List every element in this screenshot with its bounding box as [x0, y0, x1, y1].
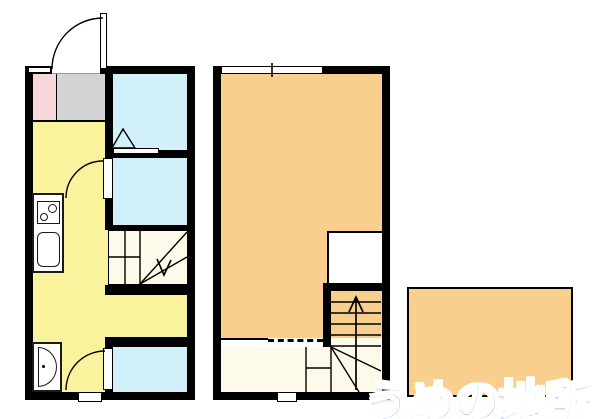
washbasin-unit [32, 342, 62, 392]
washbasin-bowl [38, 347, 57, 387]
faucet-icon [42, 365, 45, 368]
bath-door [113, 148, 159, 154]
western-room-floor [221, 74, 382, 338]
burner-icon [40, 213, 48, 221]
floor-vent [78, 392, 102, 402]
floor-vent [277, 392, 297, 402]
interior-wall [105, 337, 187, 347]
stair-wall [323, 283, 382, 291]
wc-door [103, 348, 113, 390]
window [221, 66, 323, 74]
entrance-door [100, 13, 107, 69]
stairwell-void [327, 231, 382, 285]
loft-dashed-line [268, 339, 323, 342]
toilet-room-floor [113, 347, 187, 392]
interior-wall [105, 285, 195, 295]
dressing-room-floor [113, 158, 187, 225]
entrance-door-swing-arc [52, 18, 103, 69]
dressing-room-door [103, 158, 113, 199]
entrance-floor [57, 74, 105, 122]
floor-edge-line [221, 338, 268, 340]
left-staircase [108, 230, 188, 285]
bathroom-floor [113, 74, 187, 150]
kitchen-counter [32, 193, 64, 273]
stair-wall [323, 283, 331, 347]
kitchen-sink [37, 232, 60, 267]
floor-plan: 玄関 浴室 脱衣 室 DK 5帖 WC 洋室 7.2帖 ロフト 3帖 うめの地所 [0, 0, 600, 419]
burner-icon [48, 204, 57, 213]
company-watermark: うめの地所 [364, 364, 589, 419]
stove [37, 201, 60, 224]
small-window [28, 67, 51, 73]
entrance-opening [52, 66, 100, 74]
entrance-tataki [33, 74, 57, 122]
